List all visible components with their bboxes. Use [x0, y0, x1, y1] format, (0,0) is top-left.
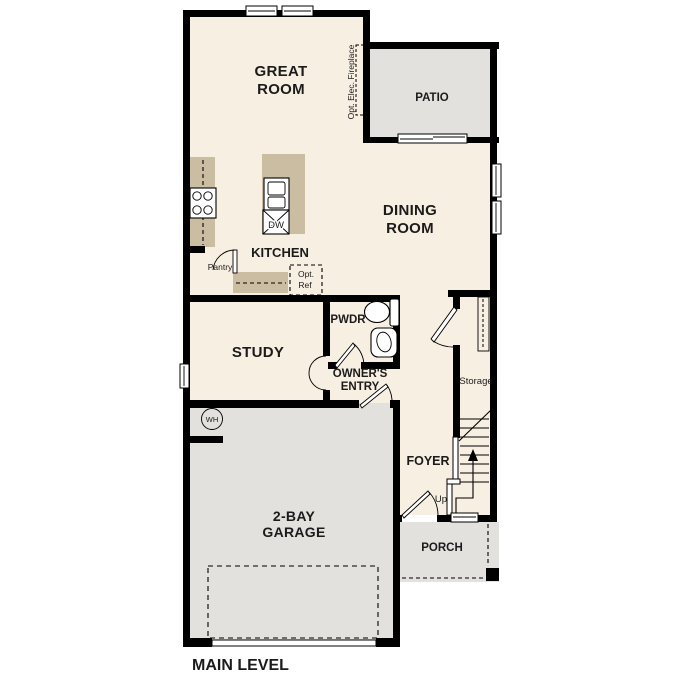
foyer-window — [451, 513, 478, 522]
dishwasher-label: DW — [268, 220, 284, 231]
floor-plan-page: DW Opt. Ref Opt. Elec. Fireplace — [0, 0, 687, 687]
porch-post — [486, 568, 499, 581]
wall-kitchen-jog — [183, 246, 205, 253]
garage-label-2: GARAGE — [262, 524, 325, 540]
powder-sink-icon — [371, 328, 397, 357]
range-icon — [190, 188, 216, 218]
up-label: Up — [435, 494, 447, 505]
dining-room-label-2: ROOM — [386, 220, 434, 237]
wall-study-right-a — [323, 298, 330, 356]
great-room-label-1: GREAT — [255, 63, 308, 80]
dining-room-label-1: DINING — [383, 202, 437, 219]
wall-wh-nook — [190, 436, 223, 443]
patio-label: PATIO — [415, 92, 448, 104]
wall-study-bottom — [183, 400, 359, 408]
garage-overhead-door — [212, 640, 376, 646]
storage-label: Storage — [459, 376, 492, 387]
study-label: STUDY — [232, 344, 284, 361]
owners-entry-label-2: ENTRY — [341, 381, 380, 393]
kitchen-sink-icon — [264, 178, 289, 210]
dining-window-1 — [492, 164, 501, 197]
wall-patio-top — [363, 42, 499, 49]
wall-entry-bottom — [390, 400, 400, 408]
opt-ref-label-2: Ref — [298, 280, 312, 290]
garage-label-1: 2-BAY — [273, 508, 316, 524]
great-room-label-2: ROOM — [257, 81, 305, 98]
wall-patio-right — [490, 42, 497, 143]
dishwasher-icon: DW — [263, 210, 289, 234]
dining-window-2 — [492, 201, 501, 234]
wall-stair-left — [453, 345, 460, 438]
floor-plan-drawing: DW Opt. Ref Opt. Elec. Fireplace — [0, 0, 687, 687]
owners-entry-label-1: OWNER'S — [333, 368, 388, 380]
water-heater-label: WH — [206, 415, 219, 424]
wall-left-exterior — [183, 10, 190, 647]
study-window — [180, 364, 189, 388]
porch-label: PORCH — [421, 542, 463, 554]
patio-sliding-door — [398, 134, 467, 143]
optional-fireplace-label: Opt. Elec. Fireplace — [346, 44, 356, 119]
wall-garage-right — [393, 400, 400, 647]
wall-greatroom-right — [363, 10, 370, 143]
wall-kitchen-bottom — [183, 295, 400, 302]
plan-title: MAIN LEVEL — [192, 657, 289, 674]
wall-garage-bottom-b — [376, 638, 400, 647]
wall-stair-stub — [453, 290, 460, 309]
opt-ref-label-1: Opt. — [298, 269, 314, 279]
wall-garage-bottom-a — [183, 638, 212, 647]
foyer-label: FOYER — [406, 454, 449, 468]
wall-right-exterior — [490, 143, 497, 522]
powder-room-label: PWDR — [330, 314, 366, 326]
kitchen-label: KITCHEN — [251, 245, 309, 260]
pantry-label: Pantry — [208, 262, 233, 272]
